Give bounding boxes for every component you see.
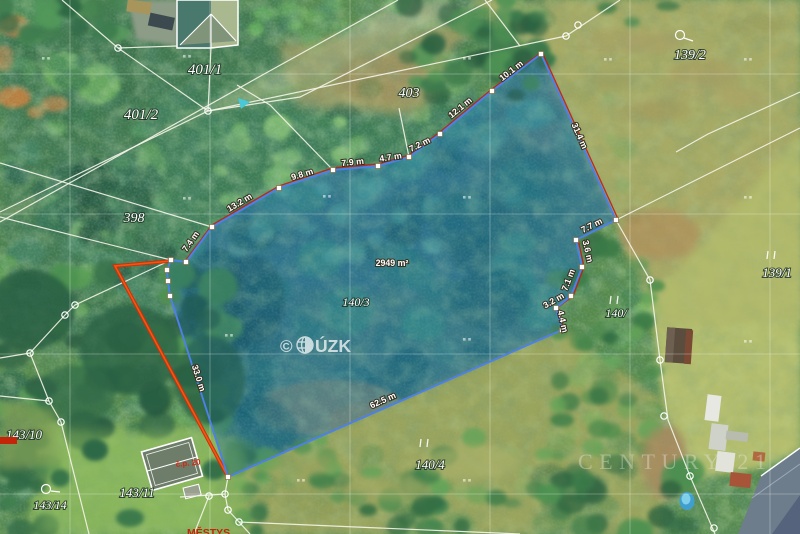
svg-text:140/3: 140/3 <box>342 295 369 309</box>
svg-text:403: 403 <box>399 86 420 101</box>
svg-text:143/11: 143/11 <box>119 485 154 500</box>
svg-text:401/1: 401/1 <box>188 62 222 78</box>
svg-text:CENTURY 21: CENTURY 21 <box>578 449 772 474</box>
svg-text:139/1: 139/1 <box>762 265 792 280</box>
svg-text:139/2: 139/2 <box>674 48 706 63</box>
svg-text:140/4: 140/4 <box>415 457 445 472</box>
svg-text:©: © <box>280 337 293 356</box>
svg-text:143/14: 143/14 <box>33 498 66 512</box>
svg-text:401/2: 401/2 <box>124 107 159 123</box>
svg-text:398: 398 <box>123 211 145 226</box>
svg-text:ÚZK: ÚZK <box>315 335 351 356</box>
svg-text:2949 m²: 2949 m² <box>376 258 409 268</box>
svg-text:MĚSTYS: MĚSTYS <box>187 526 230 534</box>
svg-text:140/: 140/ <box>605 306 628 320</box>
